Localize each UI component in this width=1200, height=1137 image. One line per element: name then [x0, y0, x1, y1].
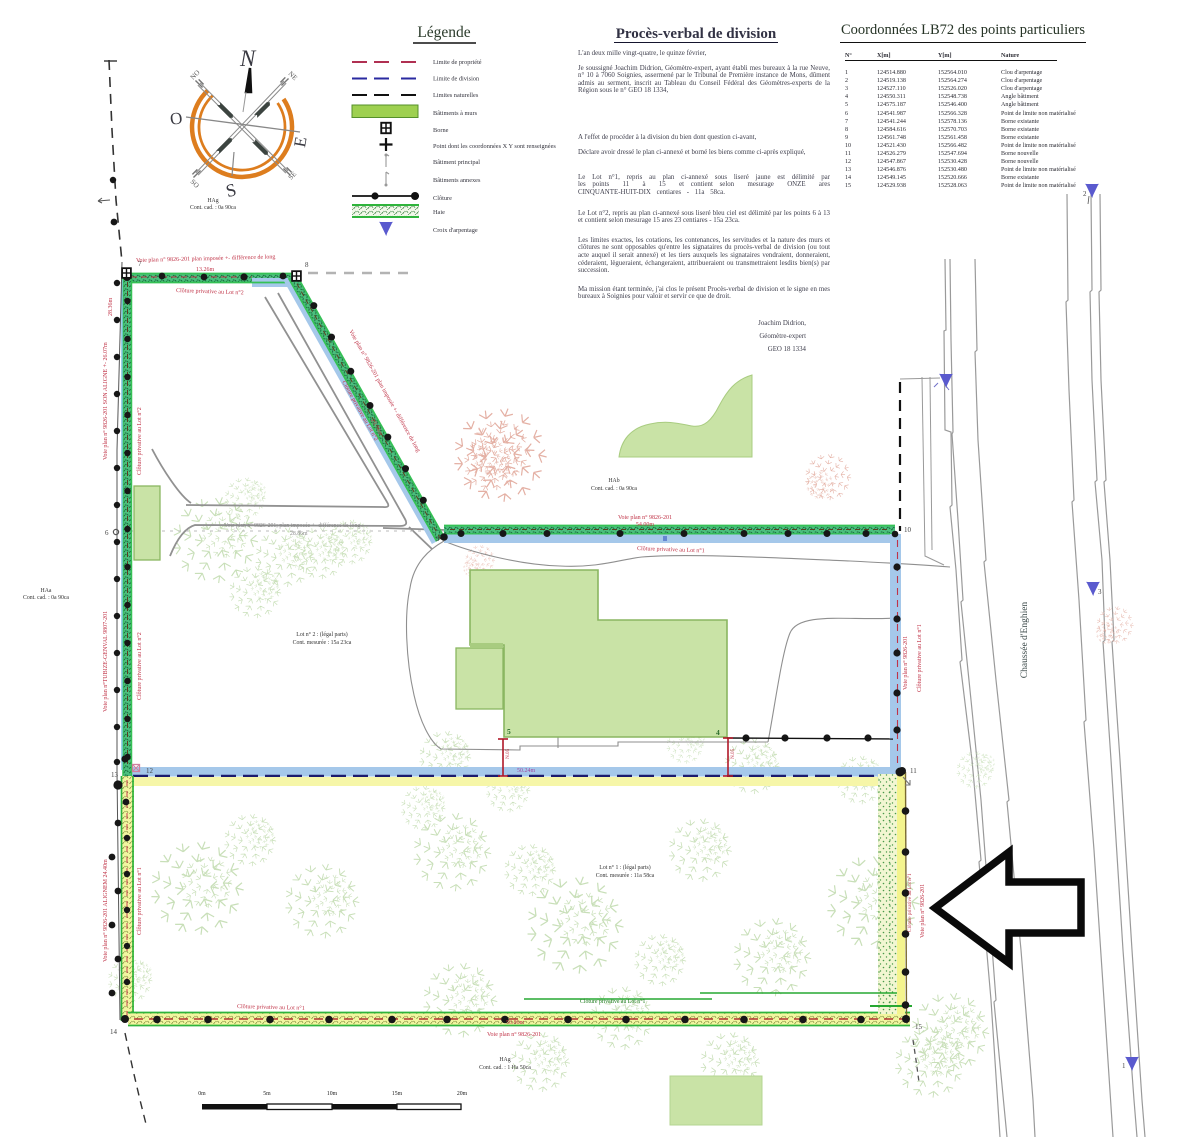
svg-text:Clôture privative au Lot n°1: Clôture privative au Lot n°1: [580, 998, 646, 1005]
svg-text:Voie plan n° 9826-201: Voie plan n° 9826-201: [487, 1031, 541, 1038]
svg-text:Clôture privative au Lot n°2: Clôture privative au Lot n°2: [136, 632, 143, 700]
svg-text:4: 4: [716, 728, 720, 737]
svg-text:Bâtiments à murs: Bâtiments à murs: [433, 110, 478, 117]
svg-text:0m: 0m: [198, 1091, 206, 1097]
svg-text:Voie plan n° 9826-201 plan imp: Voie plan n° 9826-201 plan imposée +- di…: [136, 253, 275, 264]
svg-text:Cont. cad. : 0a 90ca: Cont. cad. : 0a 90ca: [23, 595, 69, 601]
svg-text:2: 2: [1083, 190, 1087, 198]
svg-text:S: S: [224, 179, 239, 201]
svg-text:13: 13: [111, 771, 119, 779]
svg-text:Clôture privative au Lot n°2: Clôture privative au Lot n°2: [136, 407, 143, 475]
svg-text:E: E: [290, 135, 311, 149]
svg-text:Clôture privative au Lot n°1: Clôture privative au Lot n°1: [916, 624, 923, 692]
svg-text:54.00m: 54.00m: [636, 522, 655, 528]
svg-text:Borne: Borne: [433, 127, 449, 134]
svg-text:Haie: Haie: [433, 209, 445, 216]
svg-text:Voie plan n° 9826-201: Voie plan n° 9826-201: [919, 884, 926, 938]
svg-text:Point dont les coordonnées X Y: Point dont les coordonnées X Y sont rens…: [433, 143, 556, 150]
svg-text:Cont. cad. : 0a 90ca: Cont. cad. : 0a 90ca: [190, 205, 236, 211]
svg-text:Clôture privative au Lot n°1: Clôture privative au Lot n°1: [906, 873, 913, 932]
svg-text:Clôture privative au Lot n°2: Clôture privative au Lot n°2: [176, 287, 244, 296]
svg-text:Cont. mesurée : 15a 23ca: Cont. mesurée : 15a 23ca: [293, 640, 352, 646]
svg-text:11: 11: [910, 767, 917, 775]
svg-text:N.05: N.05: [730, 748, 736, 759]
svg-text:HAa: HAa: [41, 588, 52, 594]
svg-text:Croix d'arpentage: Croix d'arpentage: [433, 227, 478, 234]
svg-text:Voie plan n° 9826-201: Voie plan n° 9826-201: [618, 514, 672, 521]
svg-text:Bâtiment principal: Bâtiment principal: [433, 159, 480, 166]
svg-text:28.86m: 28.86m: [290, 531, 308, 537]
svg-text:SO: SO: [189, 178, 201, 190]
svg-text:Chaussée d'Enghien: Chaussée d'Enghien: [1020, 602, 1030, 679]
svg-text:Clôture privative au Lot n°1: Clôture privative au Lot n°1: [237, 1003, 305, 1012]
svg-text:15m: 15m: [392, 1091, 403, 1097]
svg-text:50.86m: 50.86m: [506, 1020, 525, 1026]
svg-text:Clôture privative au Lot n°1: Clôture privative au Lot n°1: [637, 545, 705, 554]
svg-text:5m: 5m: [263, 1091, 271, 1097]
svg-text:9: 9: [436, 535, 440, 543]
svg-text:Légende: Légende: [417, 24, 470, 41]
svg-text:13.26m: 13.26m: [196, 267, 215, 273]
svg-text:Voie plan n° 9826-201 ALIGNEM: Voie plan n° 9826-201 ALIGNEM 24.40m: [102, 859, 109, 962]
svg-text:Cont. cad. : 1 Ha 50ca: Cont. cad. : 1 Ha 50ca: [479, 1065, 531, 1071]
svg-text:50.24m: 50.24m: [517, 768, 536, 774]
svg-text:HAg: HAg: [499, 1057, 510, 1063]
svg-text:Voie plan n°TUBIZE-GENVAL 9807: Voie plan n°TUBIZE-GENVAL 9807-201: [102, 611, 109, 712]
svg-text:20m: 20m: [457, 1091, 468, 1097]
svg-text:HAb: HAb: [608, 478, 619, 484]
svg-text:N: N: [239, 46, 257, 71]
svg-text:SE: SE: [287, 170, 298, 181]
svg-text:Cont. cad. : 0a 90ca: Cont. cad. : 0a 90ca: [591, 486, 637, 492]
svg-text:Clôture: Clôture: [433, 195, 452, 202]
svg-text:O: O: [169, 108, 184, 129]
svg-text:10: 10: [904, 526, 912, 534]
svg-text:6: 6: [105, 529, 109, 537]
svg-text:Limite de division: Limite de division: [433, 76, 480, 83]
svg-text:N.05: N.05: [505, 748, 511, 759]
svg-text:1: 1: [1122, 1062, 1126, 1070]
svg-text:Bâtiments annexes: Bâtiments annexes: [433, 177, 481, 184]
svg-text:Limites naturelles: Limites naturelles: [433, 92, 479, 99]
svg-text:NE: NE: [287, 70, 299, 82]
svg-text:12: 12: [146, 767, 154, 775]
svg-text:Clôture privative au Lot n°1: Clôture privative au Lot n°1: [136, 867, 143, 935]
svg-text:3: 3: [1098, 588, 1102, 596]
svg-text:Limite de propriété: Limite de propriété: [433, 59, 482, 66]
svg-text:Lot n° 1 : (légal parts): Lot n° 1 : (légal parts): [599, 864, 650, 871]
svg-text:15: 15: [915, 1023, 923, 1031]
svg-text:HAg: HAg: [207, 198, 218, 204]
svg-text:14: 14: [110, 1028, 118, 1036]
svg-text:10m: 10m: [327, 1091, 338, 1097]
svg-text:8: 8: [305, 261, 309, 269]
svg-text:Voie plan n° 9826-201: Voie plan n° 9826-201: [902, 636, 909, 690]
svg-text:5: 5: [507, 727, 511, 736]
svg-text:Lot n° 2 : (légal parts): Lot n° 2 : (légal parts): [296, 631, 347, 638]
svg-text:Voie plan n° 9826-201; plan im: Voie plan n° 9826-201; plan imposée +- d…: [224, 522, 360, 529]
svg-text:Voie plan n° 9826-201 SON ALIG: Voie plan n° 9826-201 SON ALIGNE +- 26.0…: [102, 342, 109, 460]
svg-text:Cont. mesurée : 11a 58ca: Cont. mesurée : 11a 58ca: [596, 873, 655, 879]
svg-text:28.36m: 28.36m: [108, 298, 114, 317]
